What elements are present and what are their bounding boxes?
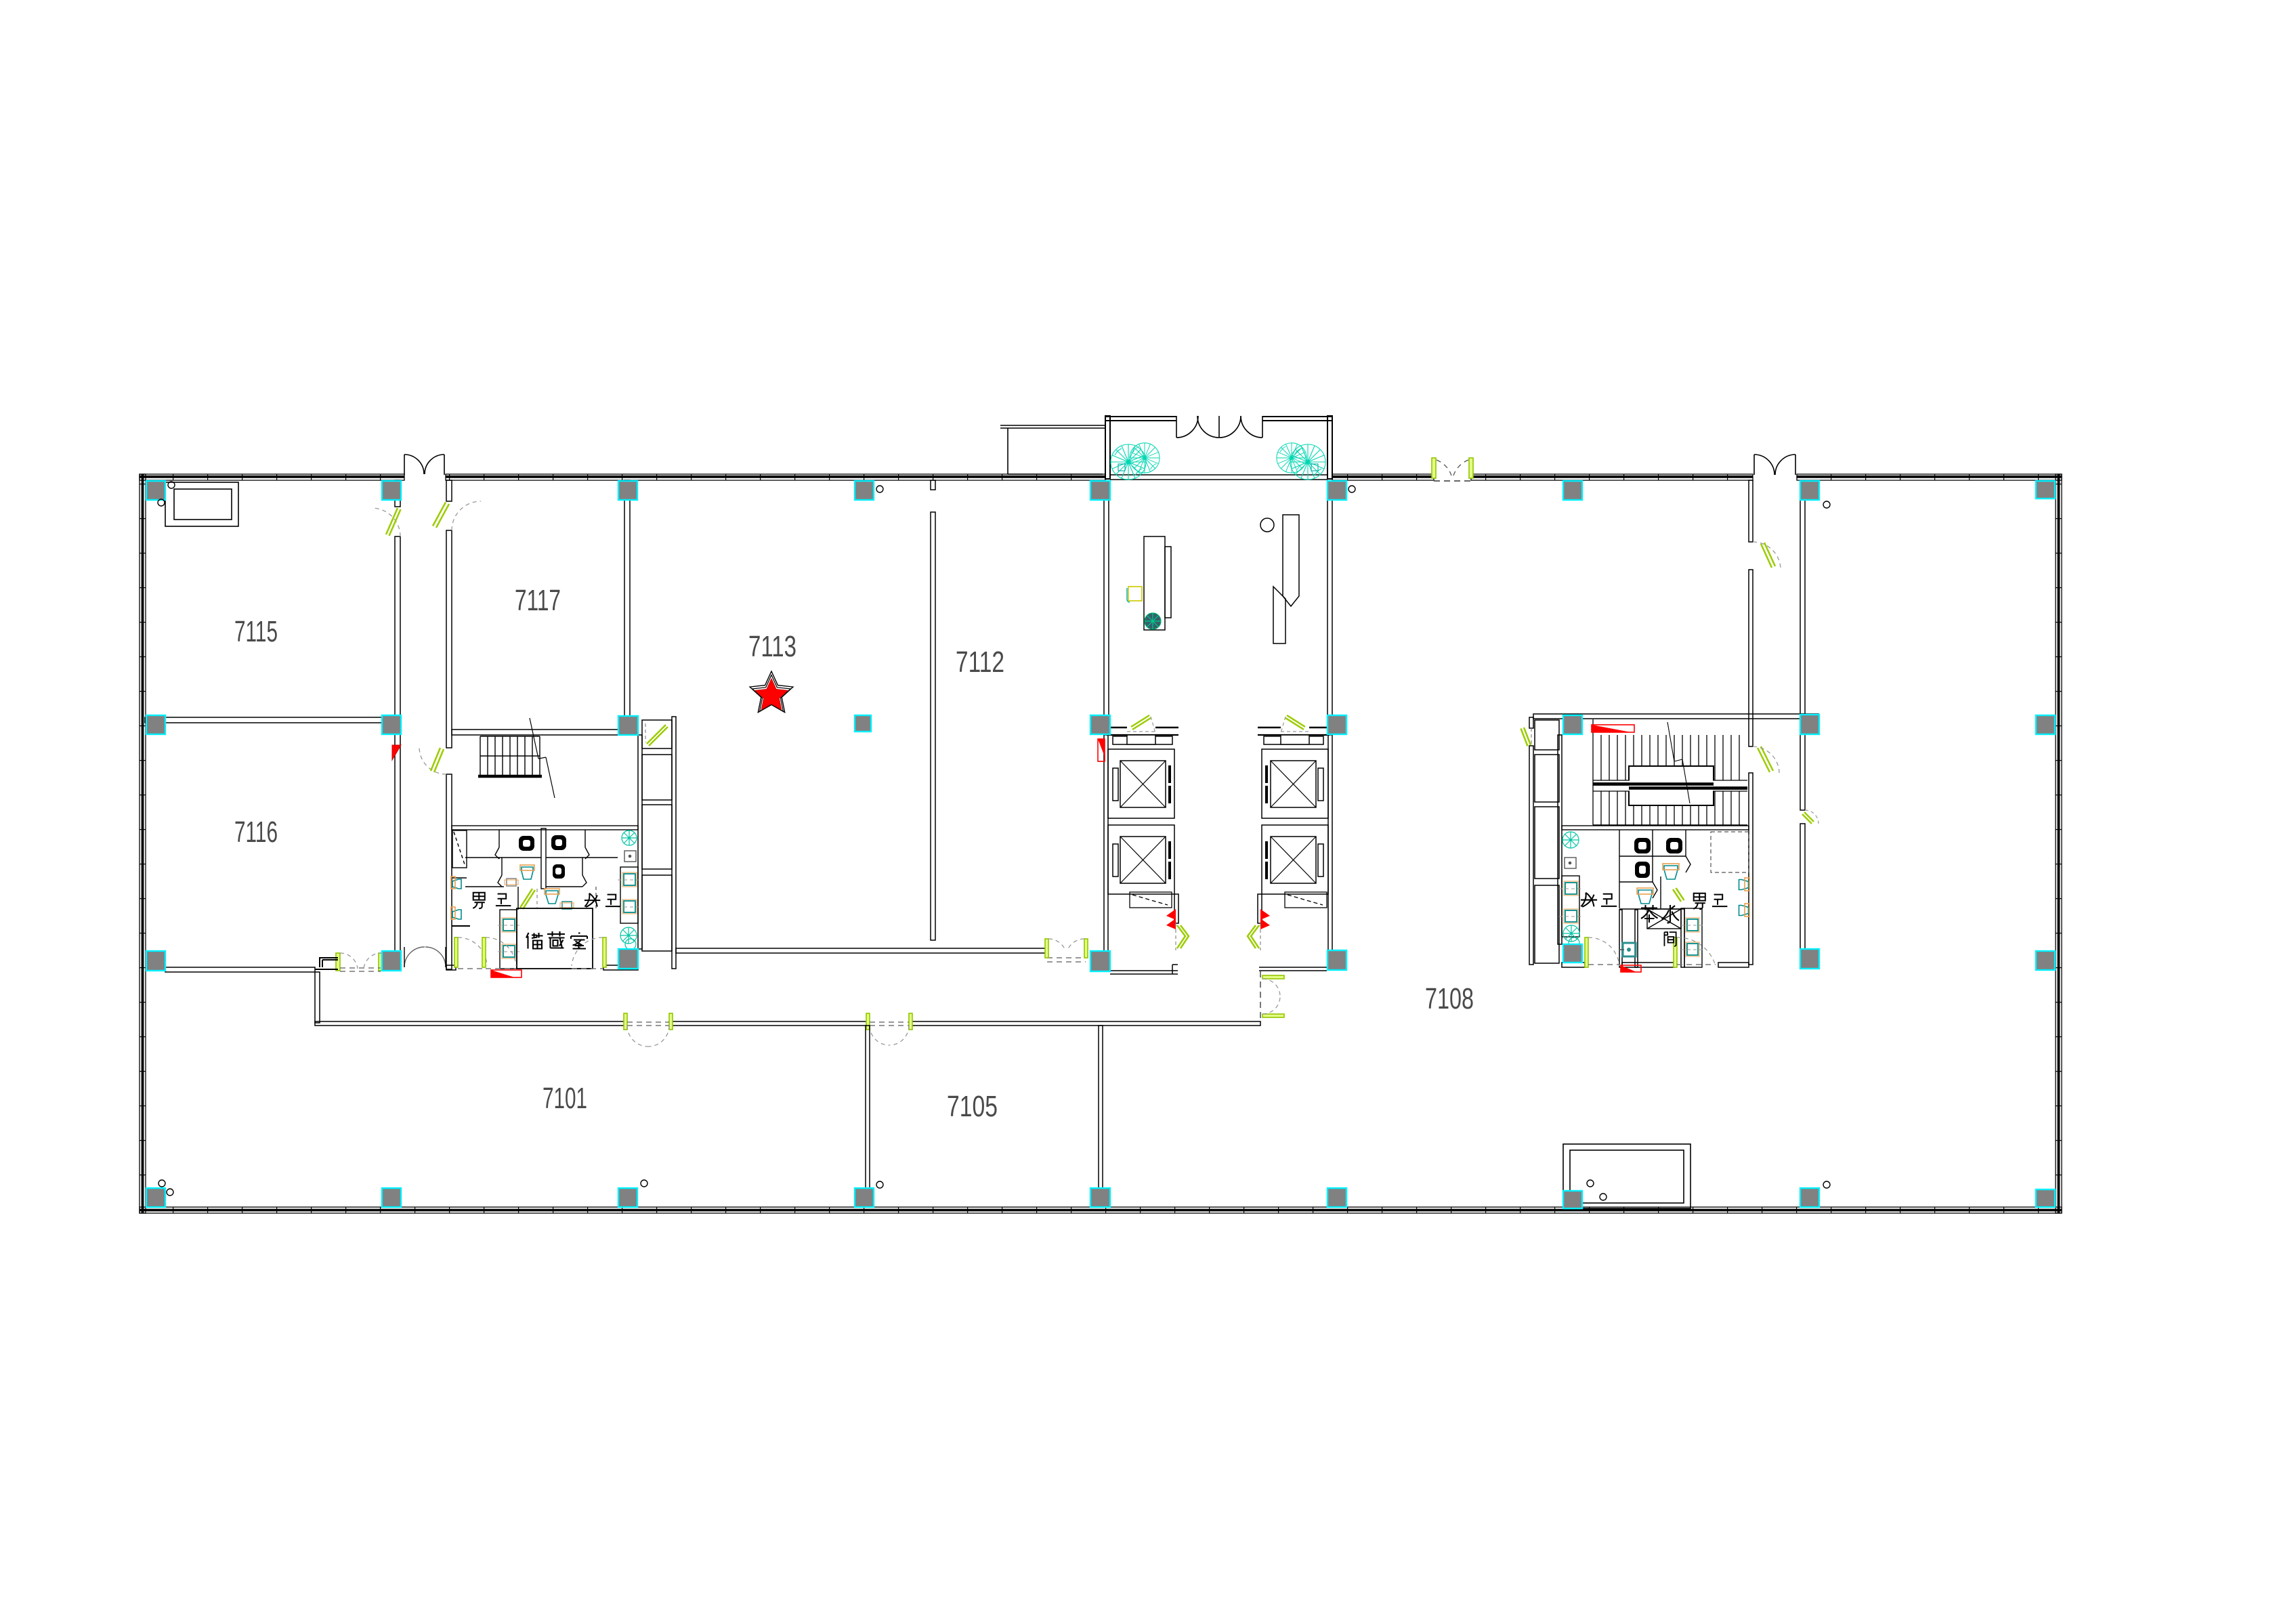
svg-text:7112: 7112 — [956, 646, 1004, 679]
svg-text:7117: 7117 — [515, 584, 561, 617]
svg-text:7113: 7113 — [748, 630, 796, 663]
svg-text:7108: 7108 — [1425, 982, 1474, 1015]
svg-text:7115: 7115 — [234, 615, 278, 648]
svg-text:7105: 7105 — [947, 1090, 998, 1123]
svg-text:7116: 7116 — [234, 816, 278, 849]
svg-text:7101: 7101 — [543, 1082, 587, 1115]
